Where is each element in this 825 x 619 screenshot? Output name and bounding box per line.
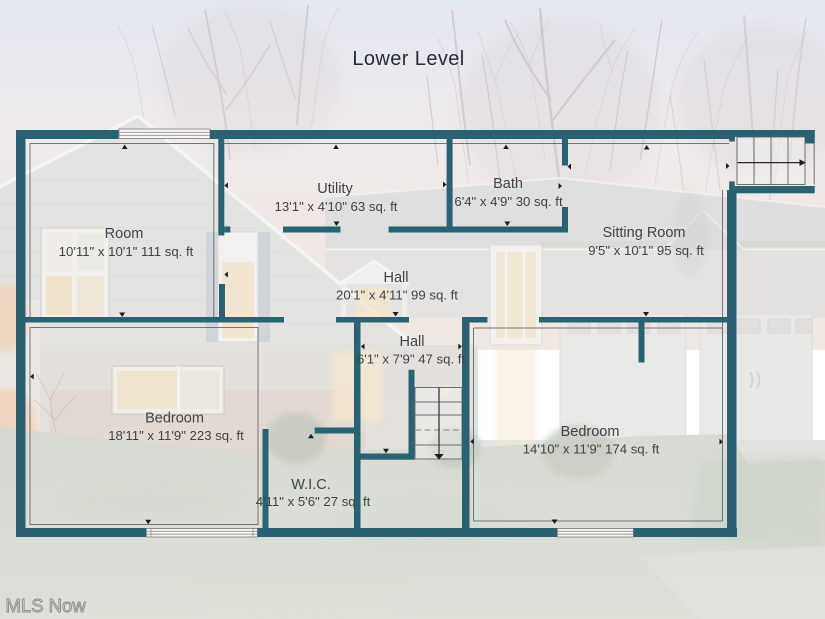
svg-text:Bedroom: Bedroom <box>561 424 620 440</box>
svg-text:Bath: Bath <box>493 176 523 192</box>
svg-text:9'5" x 10'1" 95 sq. ft: 9'5" x 10'1" 95 sq. ft <box>588 243 704 258</box>
svg-text:Lower Level: Lower Level <box>352 48 464 70</box>
svg-text:Sitting Room: Sitting Room <box>602 225 685 241</box>
svg-text:18'11" x 11'9" 223 sq. ft: 18'11" x 11'9" 223 sq. ft <box>108 428 244 443</box>
svg-text:6'4" x 4'9" 30 sq. ft: 6'4" x 4'9" 30 sq. ft <box>454 194 563 209</box>
svg-text:W.I.C.: W.I.C. <box>291 477 330 493</box>
svg-text:14'10" x 11'9" 174 sq. ft: 14'10" x 11'9" 174 sq. ft <box>523 442 660 457</box>
svg-text:Utility: Utility <box>317 181 353 197</box>
svg-text:6'1" x 7'9" 47 sq. ft: 6'1" x 7'9" 47 sq. ft <box>357 352 466 367</box>
svg-text:10'11" x 10'1" 111 sq. ft: 10'11" x 10'1" 111 sq. ft <box>59 244 194 259</box>
svg-text:MLS Now: MLS Now <box>6 595 87 616</box>
svg-text:Room: Room <box>105 226 144 242</box>
svg-text:13'1" x 4'10" 63 sq. ft: 13'1" x 4'10" 63 sq. ft <box>275 199 398 214</box>
svg-text:20'1" x 4'11" 99 sq. ft: 20'1" x 4'11" 99 sq. ft <box>336 288 458 303</box>
svg-text:Hall: Hall <box>384 270 409 286</box>
svg-text:Hall: Hall <box>400 334 425 350</box>
svg-text:Bedroom: Bedroom <box>145 411 204 427</box>
svg-text:4'11" x 5'6" 27 sq. ft: 4'11" x 5'6" 27 sq. ft <box>256 494 371 509</box>
